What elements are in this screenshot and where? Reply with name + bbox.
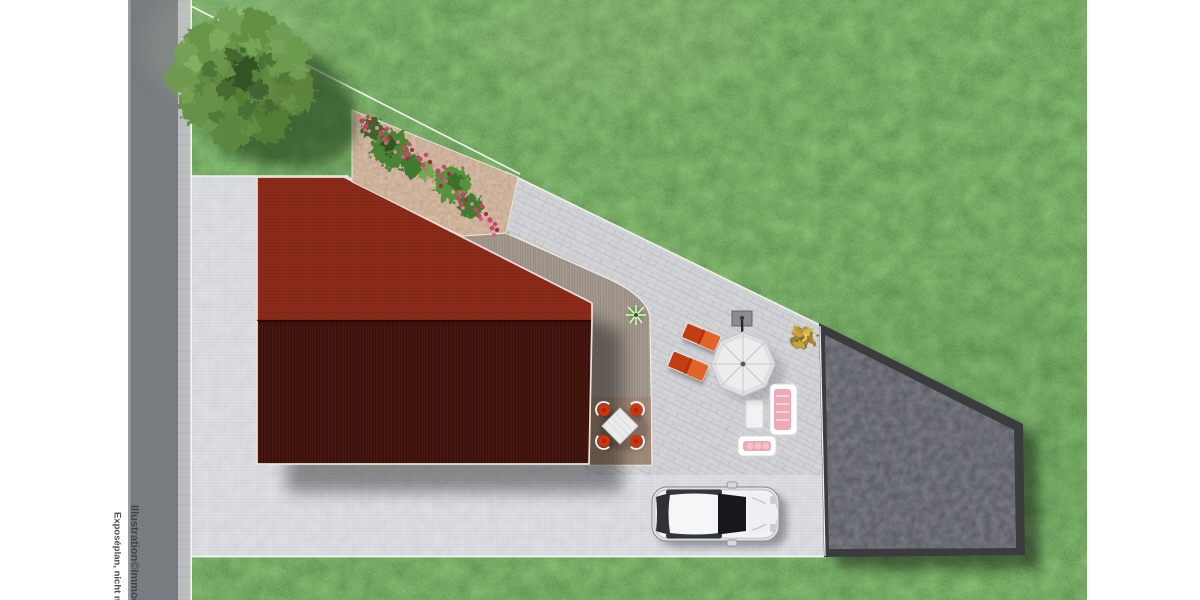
svg-text:Exposéplan, nicht maßstabsgetr: Exposéplan, nicht maßstabsgetreu [112, 512, 123, 600]
svg-text:Illustration©Immocado GmbH: Illustration©Immocado GmbH [128, 505, 140, 600]
